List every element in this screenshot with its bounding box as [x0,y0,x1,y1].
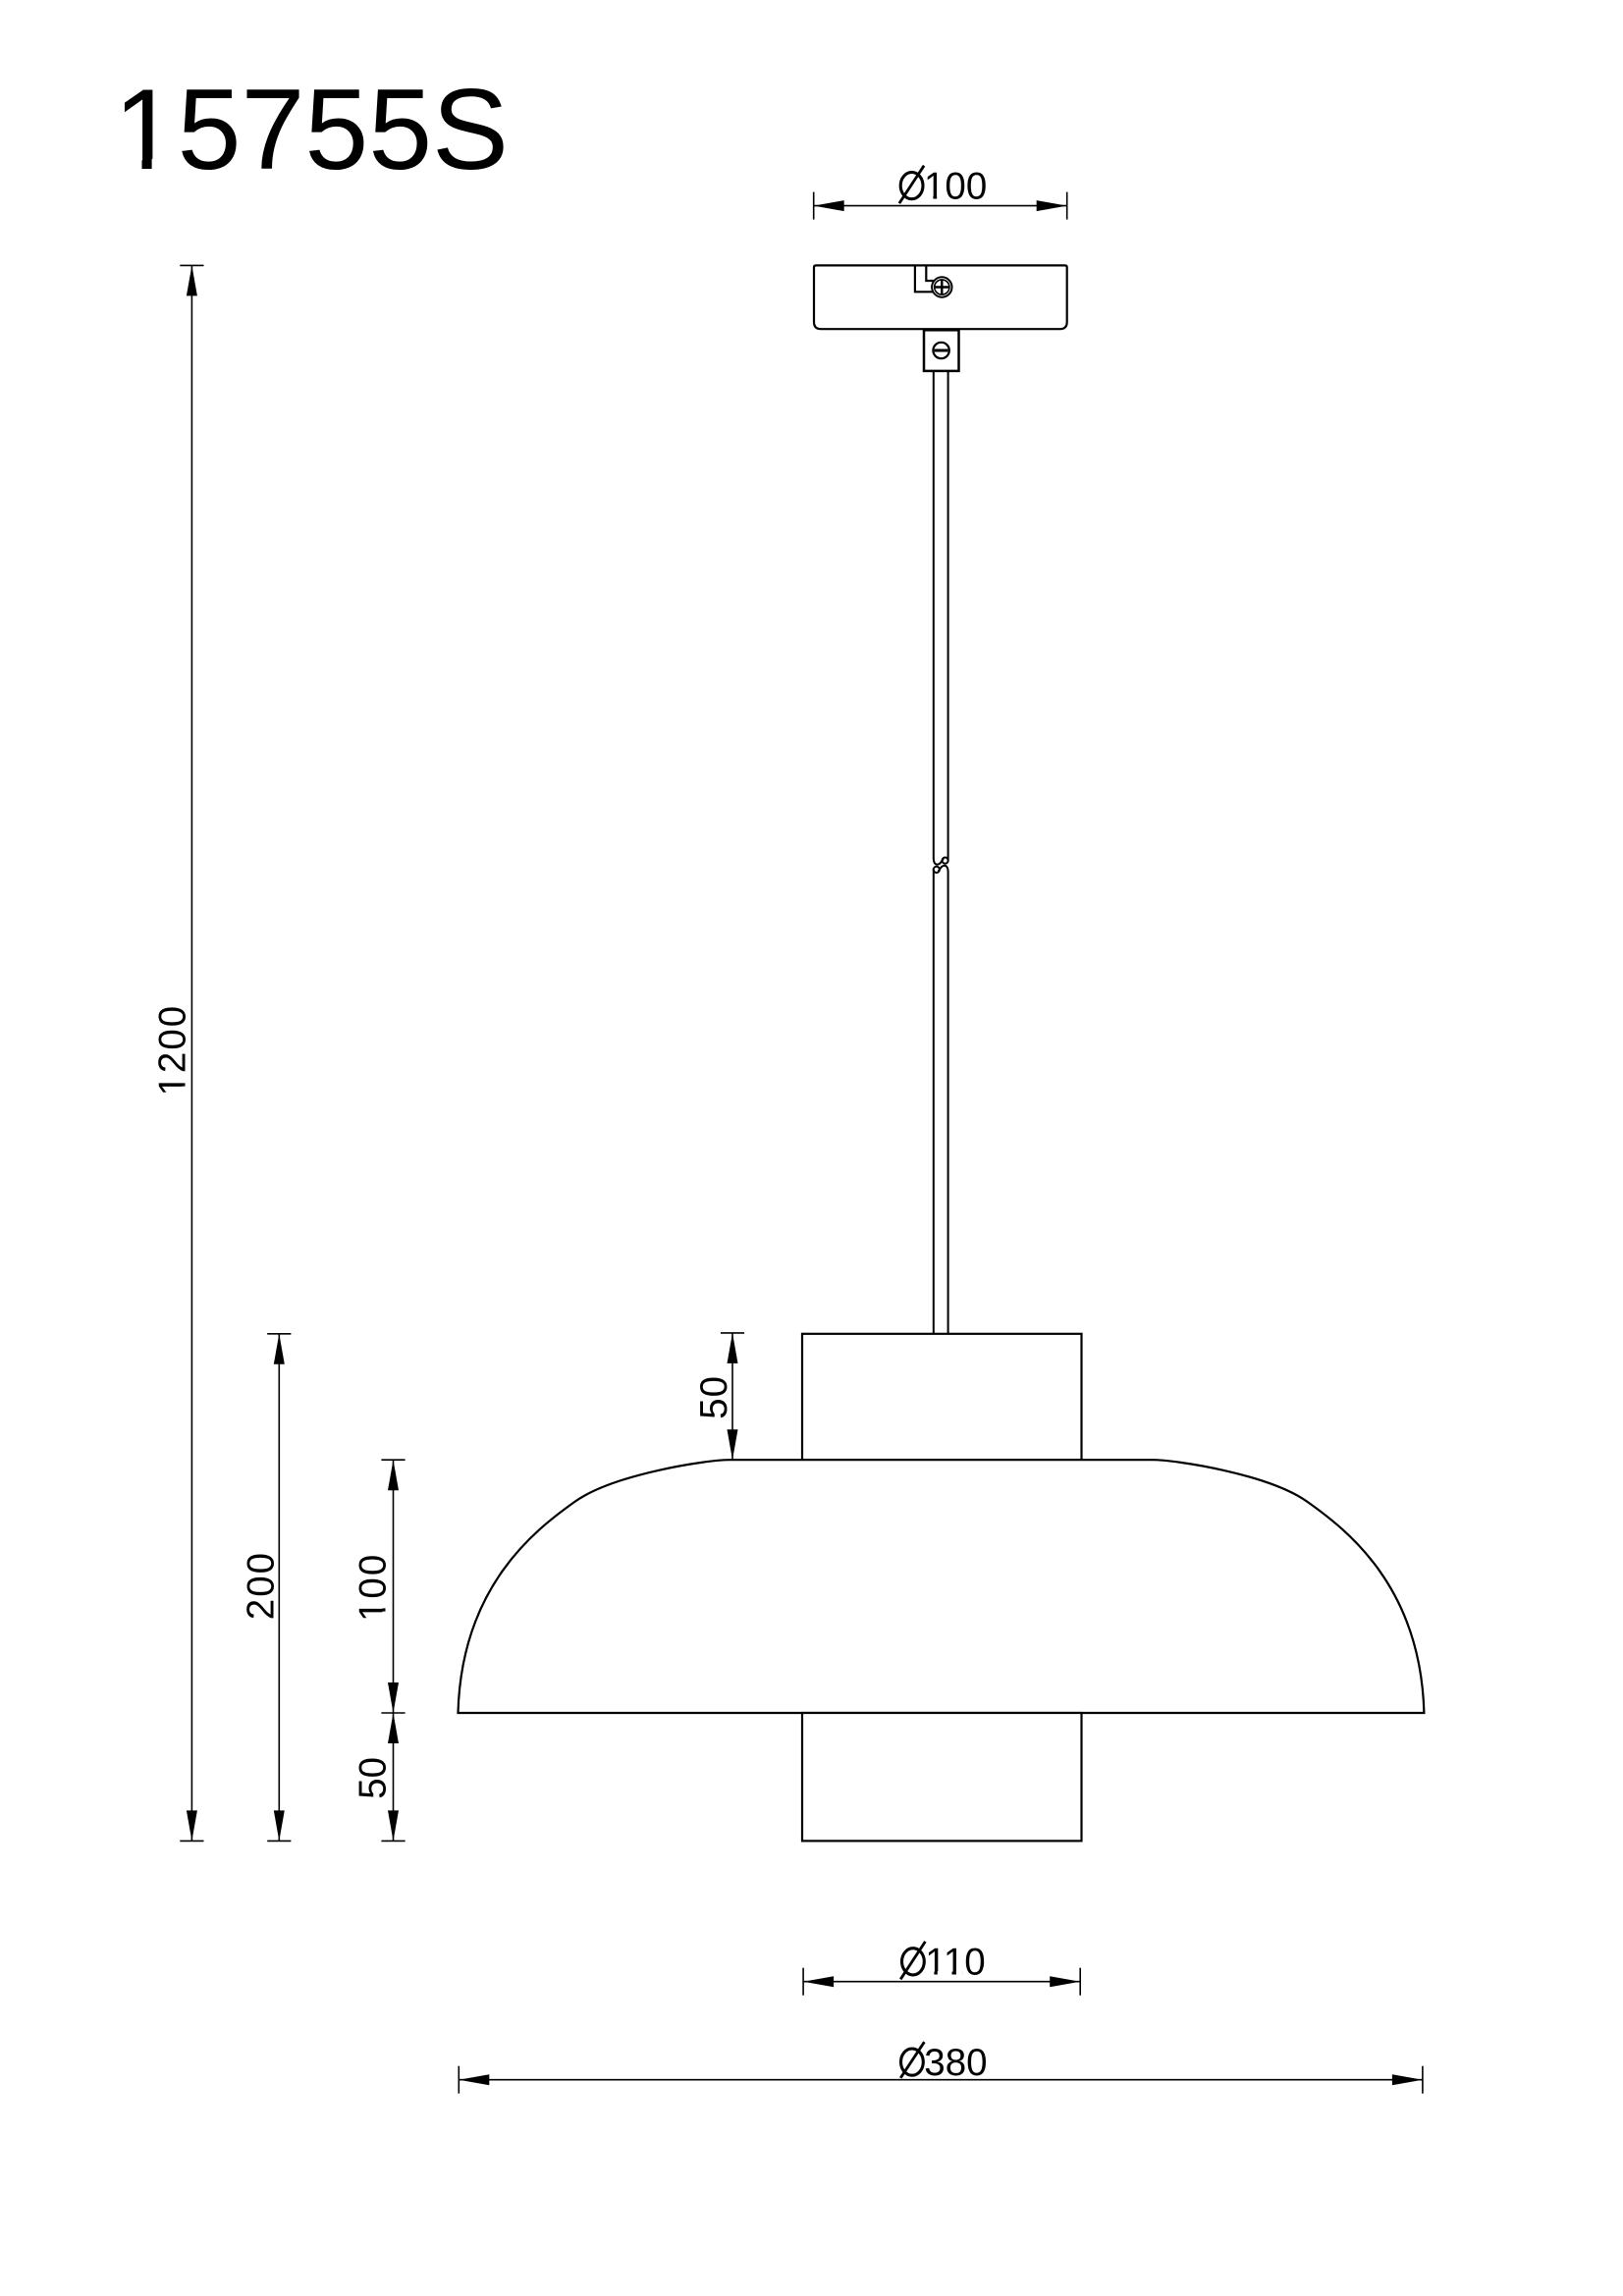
svg-text:50: 50 [352,1757,395,1799]
svg-text:380: 380 [924,2042,987,2084]
svg-text:100: 100 [352,1553,395,1622]
svg-text:50: 50 [693,1375,735,1419]
svg-text:200: 200 [241,1551,283,1620]
svg-text:110: 110 [925,1942,985,1984]
svg-text:15755S: 15755S [114,65,509,193]
svg-text:1200: 1200 [152,1004,194,1096]
svg-text:100: 100 [924,165,987,207]
